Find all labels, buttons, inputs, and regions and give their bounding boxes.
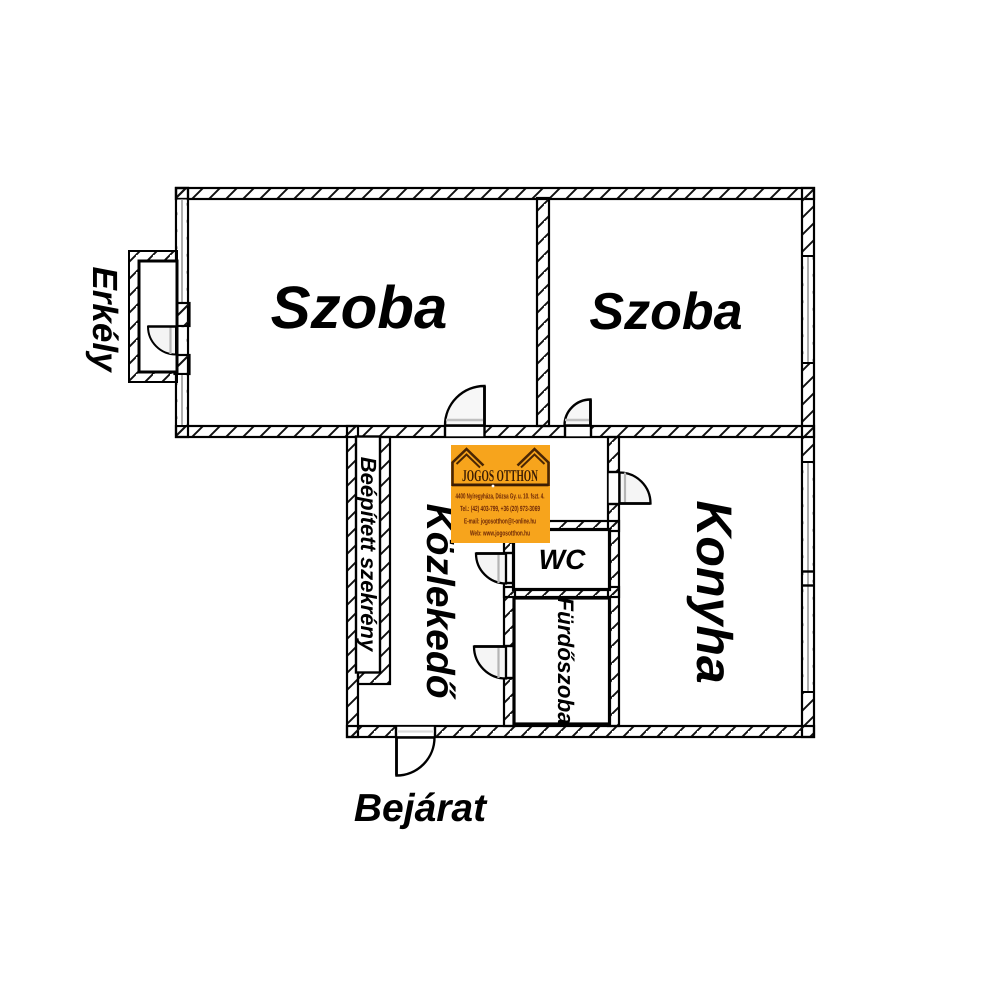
- svg-text:WC: WC: [539, 544, 586, 575]
- svg-text:Konyha: Konyha: [686, 500, 742, 683]
- svg-text:4400 Nyíregyháza, Dózsa Gy. u.: 4400 Nyíregyháza, Dózsa Gy. u. 10. fszt.…: [456, 492, 545, 501]
- svg-text:Erkély: Erkély: [85, 266, 124, 373]
- svg-text:Bejárat: Bejárat: [354, 787, 488, 830]
- svg-text:E-mail: jogosotthon@t-online.: E-mail: jogosotthon@t-online.hu: [464, 517, 536, 526]
- svg-text:Szoba: Szoba: [589, 283, 742, 341]
- svg-text:Web: www.jogosotthon.hu: Web: www.jogosotthon.hu: [470, 529, 530, 538]
- svg-text:Szoba: Szoba: [271, 274, 448, 341]
- svg-text:Fürdőszoba: Fürdőszoba: [553, 597, 578, 725]
- svg-text:Tel.: (42) 403-799, +36 (20): Tel.: (42) 403-799, +36 (20) 973-3069: [460, 504, 540, 513]
- svg-text:Beépített szekrény: Beépített szekrény: [356, 457, 381, 653]
- svg-text:JOGOS OTTHON: JOGOS OTTHON: [462, 466, 538, 485]
